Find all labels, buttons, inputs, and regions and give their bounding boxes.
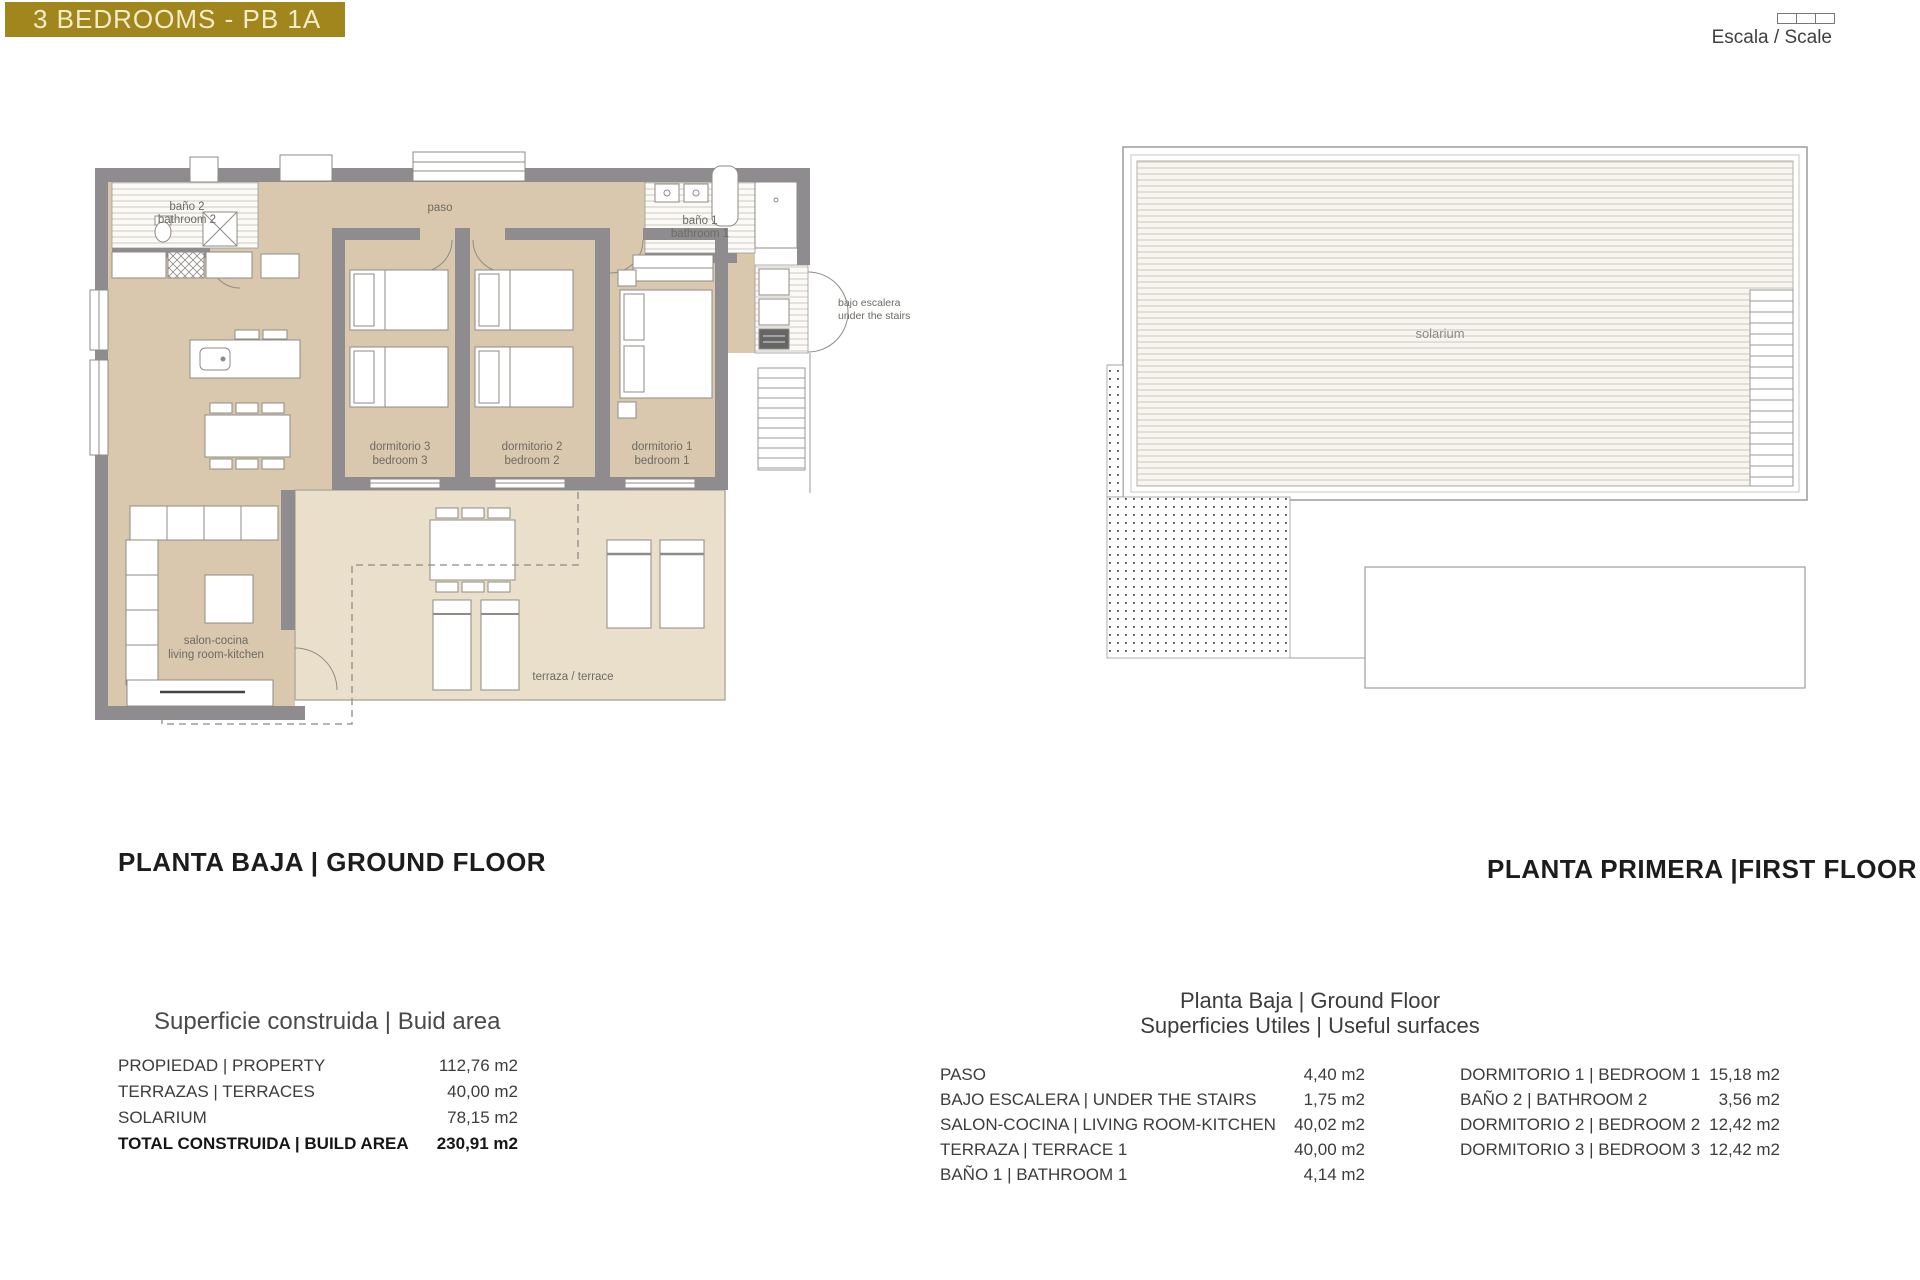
- row-label: PROPIEDAD | PROPERTY: [118, 1053, 325, 1079]
- row-label: SALON-COCINA | LIVING ROOM-KITCHEN: [940, 1112, 1276, 1137]
- row-label: PASO: [940, 1062, 986, 1087]
- row-value: 12,42 m2: [1709, 1112, 1780, 1137]
- table-row: TERRAZAS | TERRACES 40,00 m2: [118, 1079, 518, 1105]
- row-label: BAJO ESCALERA | UNDER THE STAIRS: [940, 1087, 1256, 1112]
- row-label: BAÑO 2 | BATHROOM 2: [1460, 1087, 1647, 1112]
- row-value: 12,42 m2: [1709, 1137, 1780, 1162]
- room-label-bedroom1: dormitorio 1: [632, 441, 693, 453]
- row-value: 1,75 m2: [1304, 1087, 1365, 1112]
- table-row: BAÑO 1 | BATHROOM 1 4,14 m2: [940, 1162, 1365, 1187]
- row-value: 3,56 m2: [1719, 1087, 1780, 1112]
- row-label: BAÑO 1 | BATHROOM 1: [940, 1162, 1127, 1187]
- build-area-table: Superficie construida | Buid area PROPIE…: [118, 1008, 518, 1157]
- room-label-terrace: terraza / terrace: [532, 671, 613, 683]
- svg-text:living room-kitchen: living room-kitchen: [168, 649, 264, 661]
- stairs: [1750, 290, 1793, 486]
- room-label-bedroom2: dormitorio 2: [502, 441, 563, 453]
- row-label: DORMITORIO 1 | BEDROOM 1: [1460, 1062, 1700, 1087]
- solarium-surface: [1137, 161, 1793, 486]
- table-row: DORMITORIO 1 | BEDROOM 1 15,18 m2: [1460, 1062, 1780, 1087]
- useful-table-title-2: Superficies Utiles | Useful surfaces: [940, 1013, 1680, 1038]
- useful-table-left-column: PASO 4,40 m2 BAJO ESCALERA | UNDER THE S…: [940, 1062, 1365, 1187]
- floor-plan-sheet: 3 BEDROOMS - PB 1A Escala / Scale: [0, 0, 1920, 1280]
- pergola-area: [1107, 497, 1290, 658]
- svg-text:bathroom 1: bathroom 1: [671, 228, 729, 240]
- table-row: SALON-COCINA | LIVING ROOM-KITCHEN 40,02…: [940, 1112, 1365, 1137]
- lower-roof-area: [1365, 567, 1805, 688]
- stove-icon: [168, 252, 204, 278]
- room-label-bedroom3: dormitorio 3: [370, 441, 431, 453]
- useful-surfaces-table: Planta Baja | Ground Floor Superficies U…: [940, 988, 1785, 1038]
- closet: [755, 182, 797, 248]
- ground-floor-caption: PLANTA BAJA | GROUND FLOOR: [118, 847, 546, 878]
- svg-text:bedroom 3: bedroom 3: [373, 455, 428, 467]
- row-label: TERRAZAS | TERRACES: [118, 1079, 315, 1105]
- first-floor-outline: [1107, 147, 1807, 688]
- ground-floor-plan: baño 2 bathroom 2 paso baño 1 bathroom 1…: [85, 120, 925, 740]
- table-row: PROPIEDAD | PROPERTY 112,76 m2: [118, 1053, 518, 1079]
- row-value: 78,15 m2: [447, 1105, 518, 1131]
- table-row: PASO 4,40 m2: [940, 1062, 1365, 1087]
- table-row: DORMITORIO 3 | BEDROOM 3 12,42 m2: [1460, 1137, 1780, 1162]
- row-label: DORMITORIO 2 | BEDROOM 2: [1460, 1112, 1700, 1137]
- scale-bar-icon: [1777, 13, 1835, 24]
- table-row: TERRAZA | TERRACE 1 40,00 m2: [940, 1137, 1365, 1162]
- kitchen-counters: [112, 252, 299, 278]
- row-label: DORMITORIO 3 | BEDROOM 3: [1460, 1137, 1700, 1162]
- svg-text:bedroom 1: bedroom 1: [635, 455, 690, 467]
- bedroom1-bed: [618, 255, 713, 418]
- room-label-solarium: solarium: [1415, 326, 1464, 341]
- row-value: 40,00 m2: [447, 1079, 518, 1105]
- scale-label: Escala / Scale: [1698, 27, 1832, 49]
- table-row: SOLARIUM 78,15 m2: [118, 1105, 518, 1131]
- row-value: 4,40 m2: [1304, 1062, 1365, 1087]
- row-value: 4,14 m2: [1304, 1162, 1365, 1187]
- table-row: DORMITORIO 2 | BEDROOM 2 12,42 m2: [1460, 1112, 1780, 1137]
- row-value: 112,76 m2: [439, 1053, 518, 1079]
- build-area-title: Superficie construida | Buid area: [154, 1008, 518, 1036]
- under-stairs-fixtures: [759, 269, 789, 349]
- first-floor-plan: solarium: [1090, 135, 1820, 705]
- row-label: TERRAZA | TERRACE 1: [940, 1137, 1127, 1162]
- first-floor-caption: PLANTA PRIMERA |FIRST FLOOR: [1487, 854, 1917, 885]
- svg-text:bedroom 2: bedroom 2: [505, 455, 560, 467]
- svg-text:under the stairs: under the stairs: [838, 310, 910, 322]
- useful-table-title-1: Planta Baja | Ground Floor: [940, 988, 1680, 1013]
- room-label-living: salon-cocina: [184, 635, 249, 647]
- room-label-bathroom2: baño 2: [169, 201, 204, 213]
- table-row: BAÑO 2 | BATHROOM 2 3,56 m2: [1460, 1087, 1780, 1112]
- row-value: 230,91 m2: [437, 1131, 518, 1157]
- row-value: 40,00 m2: [1294, 1137, 1365, 1162]
- title-banner: 3 BEDROOMS - PB 1A: [5, 2, 345, 37]
- table-row-total: TOTAL CONSTRUIDA | BUILD AREA 230,91 m2: [118, 1131, 518, 1157]
- row-label: SOLARIUM: [118, 1105, 207, 1131]
- coffee-table: [205, 575, 253, 623]
- svg-text:bathroom 2: bathroom 2: [158, 214, 216, 226]
- row-value: 15,18 m2: [1709, 1062, 1780, 1087]
- room-label-under-stairs: bajo escalera: [838, 297, 901, 309]
- table-row: BAJO ESCALERA | UNDER THE STAIRS 1,75 m2: [940, 1087, 1365, 1112]
- room-label-bathroom1: baño 1: [682, 215, 717, 227]
- row-value: 40,02 m2: [1294, 1112, 1365, 1137]
- page-title: 3 BEDROOMS - PB 1A: [33, 4, 321, 34]
- room-label-paso: paso: [428, 202, 453, 214]
- pergola-strip: [1107, 365, 1123, 497]
- useful-table-right-column: DORMITORIO 1 | BEDROOM 1 15,18 m2 BAÑO 2…: [1460, 1062, 1780, 1162]
- row-label: TOTAL CONSTRUIDA | BUILD AREA: [118, 1131, 409, 1157]
- dining-table-salon: [205, 403, 290, 469]
